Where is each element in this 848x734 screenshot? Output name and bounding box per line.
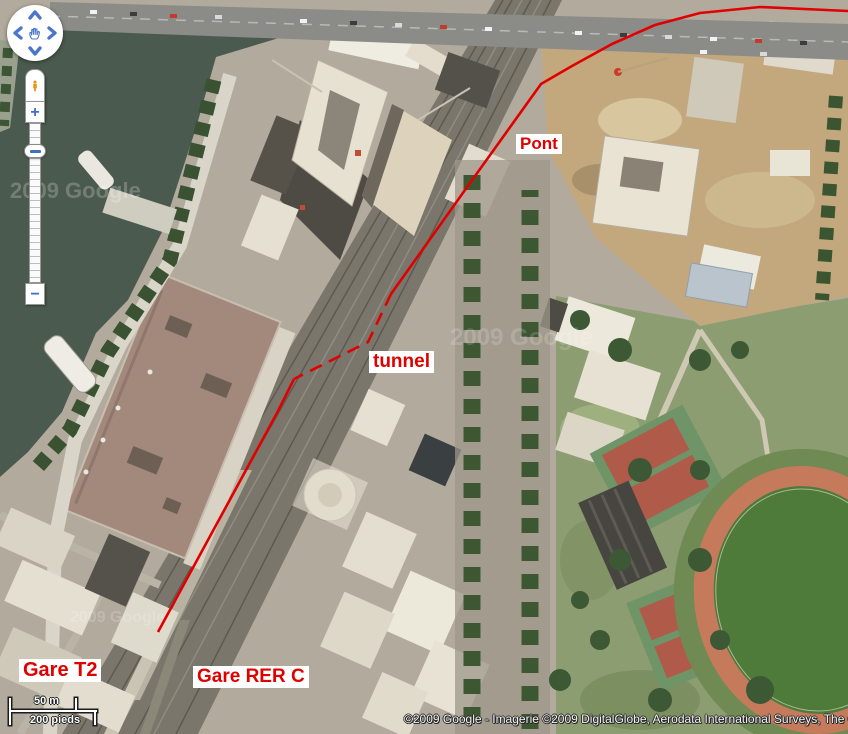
drag-hand-icon[interactable]	[26, 24, 44, 42]
scale-bar-icon	[6, 694, 116, 732]
chevron-up-icon	[28, 8, 42, 22]
tree-lined-avenue	[455, 160, 550, 734]
zoom-slider-handle[interactable]	[24, 144, 46, 158]
chevron-down-icon	[28, 44, 42, 58]
map-label-gare-rer-c: Gare RER C	[193, 666, 309, 688]
pan-up-button[interactable]	[28, 8, 42, 22]
zoom-out-button[interactable]: −	[25, 283, 45, 305]
svg-text:2009 Google: 2009 Google	[70, 609, 165, 626]
map-viewport[interactable]: 2009 Google 2009 Google 2009 Google Pont…	[0, 0, 848, 734]
attribution-text: ©2009 Google - Imagerie ©2009 DigitalGlo…	[404, 712, 848, 726]
map-label-pont: Pont	[516, 134, 562, 154]
pan-down-button[interactable]	[28, 44, 42, 58]
pan-control	[7, 5, 63, 61]
svg-text:2009 Google: 2009 Google	[450, 324, 593, 351]
pan-left-button[interactable]	[11, 26, 25, 40]
pegman-street-view-button[interactable]	[25, 69, 45, 102]
chevron-right-icon	[45, 26, 59, 40]
zoom-in-button[interactable]: +	[25, 101, 45, 123]
map-label-gare-t2: Gare T2	[19, 659, 101, 682]
pan-right-button[interactable]	[45, 26, 59, 40]
pegman-icon	[32, 73, 38, 99]
map-label-tunnel: tunnel	[369, 351, 434, 373]
chevron-left-icon	[11, 26, 25, 40]
scale-metric-label: 50 m	[34, 695, 59, 707]
scale-imperial-label: 200 pieds	[30, 714, 80, 726]
scale-control: 50 m 200 pieds	[6, 694, 116, 732]
